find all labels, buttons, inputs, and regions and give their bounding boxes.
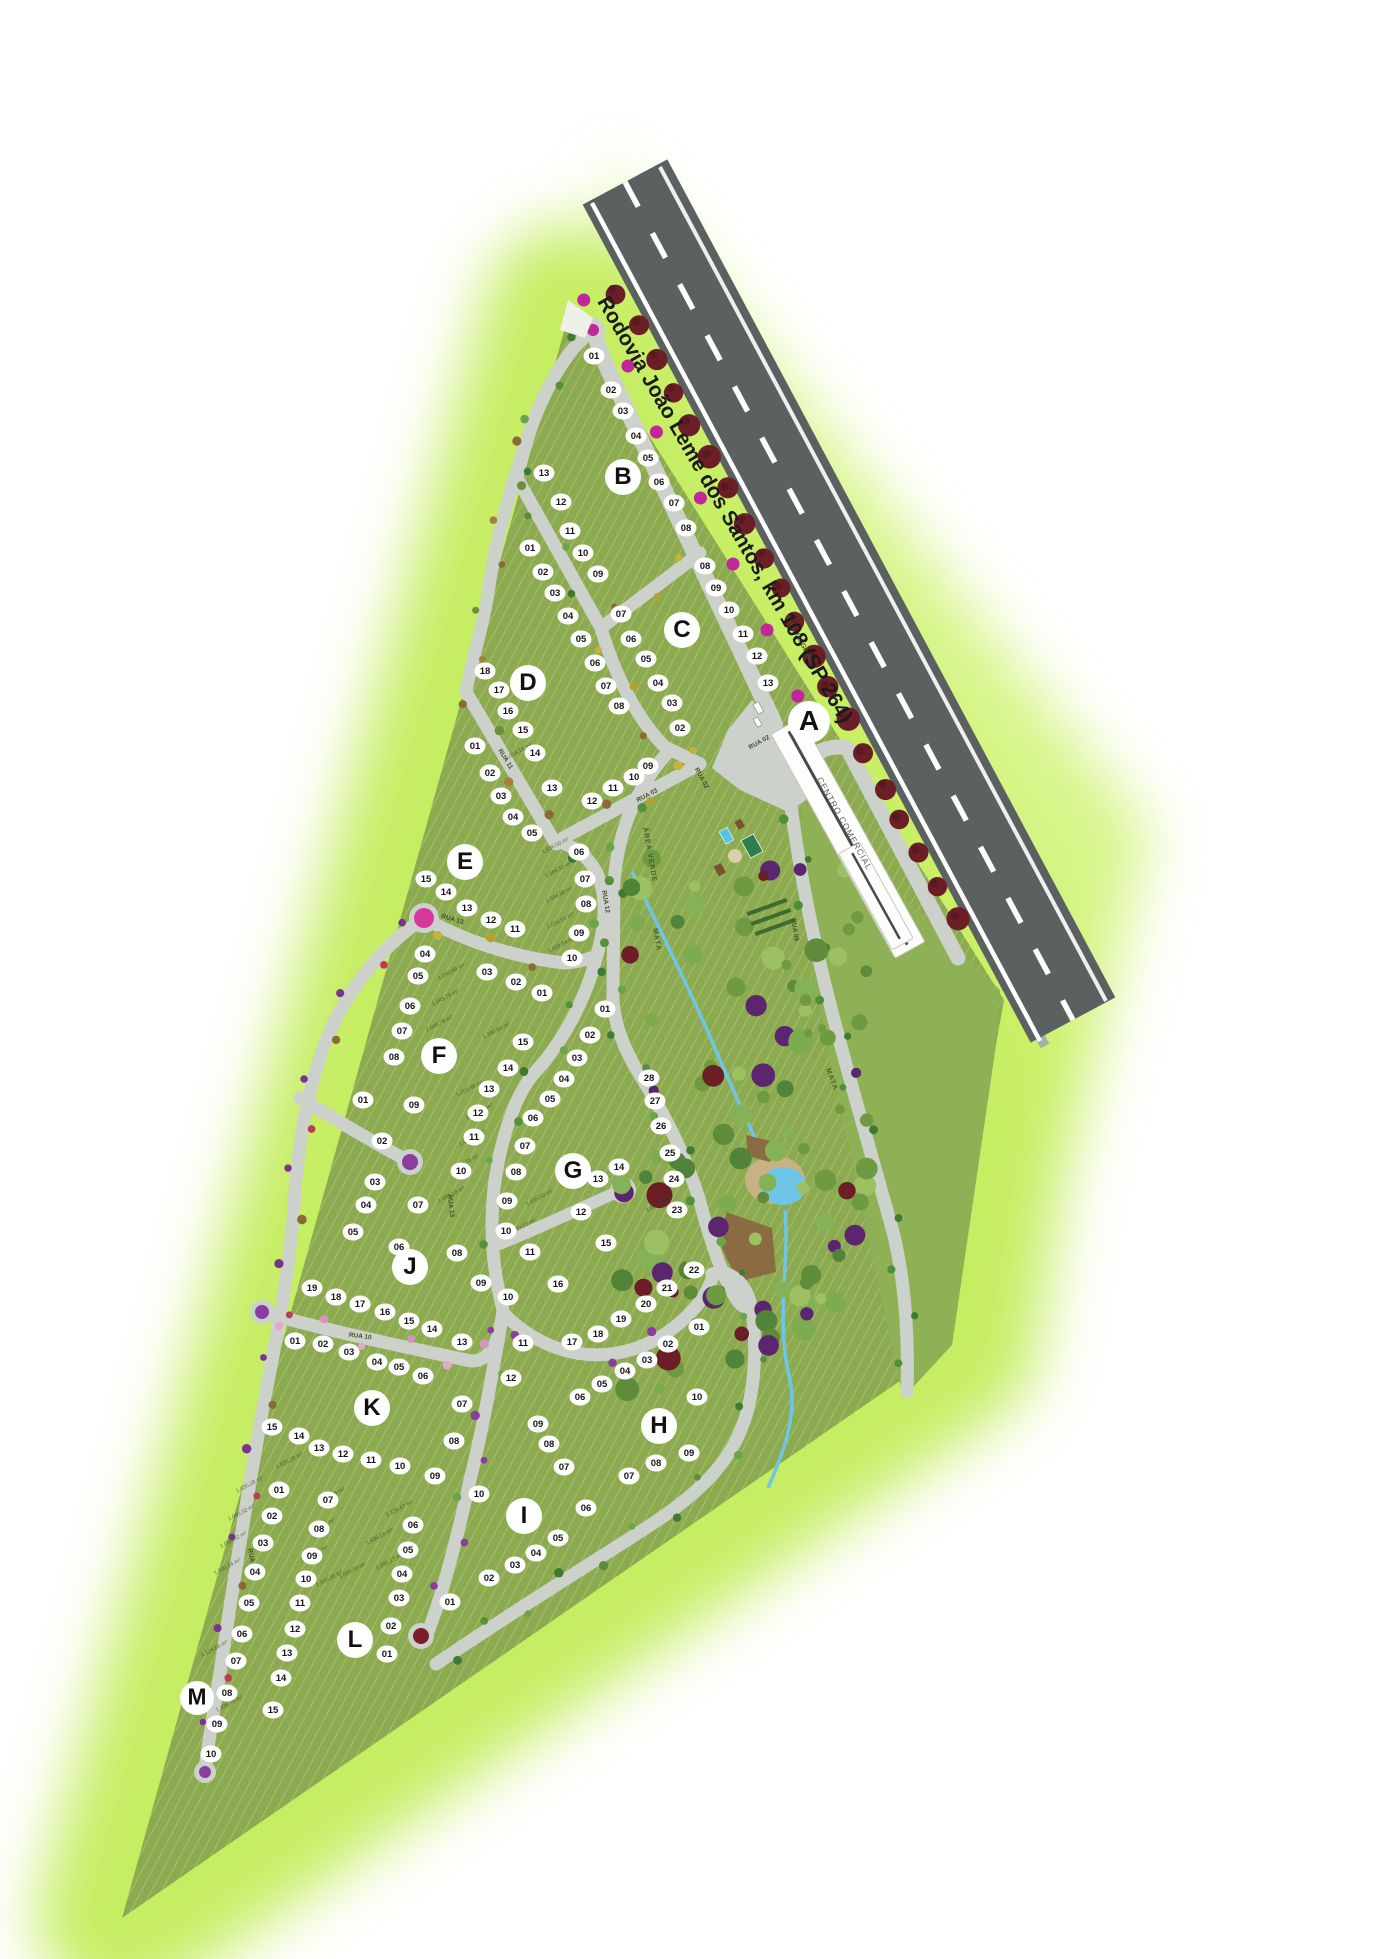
svg-text:11: 11 xyxy=(518,1338,529,1349)
svg-text:25: 25 xyxy=(665,1148,676,1159)
svg-text:18: 18 xyxy=(593,1329,604,1340)
svg-text:11: 11 xyxy=(469,1132,480,1143)
svg-text:L: L xyxy=(348,1626,363,1653)
tree-icon xyxy=(332,1036,340,1044)
svg-text:10: 10 xyxy=(692,1392,703,1403)
svg-text:07: 07 xyxy=(601,681,612,692)
tree-icon xyxy=(682,944,701,963)
lot-badge-I-05: 05 xyxy=(548,1530,569,1547)
lot-badge-E-03: 03 xyxy=(491,788,512,805)
svg-text:05: 05 xyxy=(643,453,654,464)
tree-icon xyxy=(274,1259,283,1268)
lot-badge-J-05: 05 xyxy=(343,1224,364,1241)
svg-text:07: 07 xyxy=(413,1200,424,1211)
lot-badge-K-01: 01 xyxy=(285,1333,306,1350)
svg-text:10: 10 xyxy=(501,1226,512,1237)
lot-badge-G-16: 16 xyxy=(548,1276,569,1293)
svg-text:15: 15 xyxy=(518,1037,529,1048)
feature-tree-icon xyxy=(199,1766,211,1778)
feature-tree-icon xyxy=(413,1628,429,1644)
lot-badge-I-02: 02 xyxy=(479,1570,500,1587)
tree-icon xyxy=(589,919,598,928)
tree-icon xyxy=(459,700,467,708)
tree-icon xyxy=(597,968,606,977)
lot-badge-F-06: 06 xyxy=(400,998,421,1015)
lot-badge-K-11: 11 xyxy=(361,1452,382,1469)
svg-text:04: 04 xyxy=(372,1357,383,1368)
svg-text:12: 12 xyxy=(486,915,497,926)
tree-icon xyxy=(472,607,479,614)
block-badge-F: F xyxy=(421,1038,457,1074)
lot-badge-G-09: 09 xyxy=(497,1193,518,1210)
tree-icon xyxy=(798,1143,810,1155)
svg-text:12: 12 xyxy=(506,1373,517,1384)
block-badge-J: J xyxy=(392,1249,428,1285)
svg-text:09: 09 xyxy=(684,1448,695,1459)
tree-icon xyxy=(779,814,789,824)
svg-text:10: 10 xyxy=(629,772,640,783)
lot-badge-H-06: 06 xyxy=(570,1389,591,1406)
tree-icon xyxy=(684,1285,698,1299)
lot-badge-L-02: 02 xyxy=(381,1618,402,1635)
svg-text:10: 10 xyxy=(724,605,735,616)
svg-text:01: 01 xyxy=(358,1095,369,1106)
svg-text:11: 11 xyxy=(738,629,749,640)
svg-text:01: 01 xyxy=(382,1649,393,1660)
lot-badge-I-06: 06 xyxy=(576,1500,597,1517)
svg-text:13: 13 xyxy=(484,1084,495,1095)
lot-badge-G-04: 04 xyxy=(554,1071,575,1088)
tree-icon xyxy=(605,876,614,885)
lot-badge-J-07: 07 xyxy=(408,1197,429,1214)
lot-badge-D-17: 17 xyxy=(489,682,510,699)
lot-badge-D-02: 02 xyxy=(533,564,554,581)
tree-icon xyxy=(673,1513,681,1521)
lot-badge-J-14: 14 xyxy=(422,1321,443,1338)
lot-badge-L-11: 11 xyxy=(290,1595,311,1612)
block-badge-M: M xyxy=(180,1681,214,1715)
svg-text:07: 07 xyxy=(559,1462,570,1473)
svg-text:14: 14 xyxy=(503,1063,514,1074)
svg-text:10: 10 xyxy=(578,548,589,559)
tree-icon xyxy=(751,1063,775,1087)
svg-text:F: F xyxy=(432,1042,447,1069)
lot-badge-G-18: 18 xyxy=(588,1326,609,1343)
tree-icon xyxy=(799,1004,812,1017)
tree-icon xyxy=(895,1214,903,1222)
tree-icon xyxy=(602,800,611,809)
svg-text:C: C xyxy=(673,616,690,643)
svg-text:12: 12 xyxy=(752,651,763,662)
lot-badge-C-13: 13 xyxy=(758,675,779,692)
svg-text:19: 19 xyxy=(307,1283,318,1294)
svg-text:07: 07 xyxy=(323,1495,334,1506)
lot-badge-D-15: 15 xyxy=(513,722,534,739)
tree-icon xyxy=(524,512,531,519)
svg-text:10: 10 xyxy=(206,1749,217,1760)
svg-text:08: 08 xyxy=(544,1439,555,1450)
tree-icon xyxy=(647,1327,656,1336)
lot-badge-L-03: 03 xyxy=(389,1590,410,1607)
tree-icon xyxy=(525,1610,532,1617)
svg-text:14: 14 xyxy=(530,748,541,759)
tree-icon xyxy=(650,426,663,439)
lot-badge-E-01: 01 xyxy=(465,738,486,755)
lot-badge-F-07: 07 xyxy=(392,1023,413,1040)
lot-badge-M-08: 08 xyxy=(217,1685,238,1702)
lot-badge-B-10: 10 xyxy=(573,545,594,562)
tree-icon xyxy=(951,912,959,920)
tree-icon xyxy=(556,382,564,390)
tree-icon xyxy=(629,1523,636,1530)
lot-badge-F-03: 03 xyxy=(477,964,498,981)
svg-text:05: 05 xyxy=(527,828,538,839)
lot-badge-B-03: 03 xyxy=(613,403,634,420)
lot-badge-J-03: 03 xyxy=(365,1174,386,1191)
lot-badge-I-04: 04 xyxy=(526,1545,547,1562)
lot-badge-H-03: 03 xyxy=(637,1352,658,1369)
tree-icon xyxy=(512,436,521,445)
lot-badge-C-04: 04 xyxy=(648,675,669,692)
svg-text:08: 08 xyxy=(314,1524,325,1535)
lot-badge-H-05: 05 xyxy=(592,1376,613,1393)
site-plan-map: 1.043,99 m²1.049,79 m²1.049,79 m²1.049,7… xyxy=(0,0,1400,1959)
tree-icon xyxy=(608,1359,616,1367)
lot-badge-C-03: 03 xyxy=(662,695,683,712)
tree-icon xyxy=(479,656,486,663)
lot-badge-G-22: 22 xyxy=(684,1262,705,1279)
tree-icon xyxy=(892,813,900,821)
tree-icon xyxy=(887,1265,895,1273)
tree-icon xyxy=(706,1285,726,1305)
lot-badge-D-11: 11 xyxy=(603,780,624,797)
tree-icon xyxy=(879,780,887,788)
tree-icon xyxy=(430,1582,438,1590)
svg-text:11: 11 xyxy=(565,526,576,537)
lot-badge-C-08: 08 xyxy=(695,558,716,575)
tree-icon xyxy=(654,593,661,600)
lot-badge-B-01: 01 xyxy=(584,348,605,365)
svg-text:13: 13 xyxy=(282,1648,293,1659)
lot-badge-F-01: 01 xyxy=(532,985,553,1002)
lot-badge-K-10: 10 xyxy=(390,1458,411,1475)
lot-badge-M-03: 03 xyxy=(253,1535,274,1552)
lot-badge-D-16: 16 xyxy=(498,703,519,720)
svg-text:01: 01 xyxy=(470,741,481,752)
tree-icon xyxy=(804,1029,812,1037)
lot-badge-I-09: 09 xyxy=(528,1416,549,1433)
patio xyxy=(728,849,742,863)
svg-text:03: 03 xyxy=(550,588,561,599)
svg-text:02: 02 xyxy=(511,977,522,988)
svg-text:14: 14 xyxy=(614,1162,625,1173)
tree-icon xyxy=(487,1327,494,1334)
svg-text:02: 02 xyxy=(318,1339,329,1350)
lot-badge-B-05: 05 xyxy=(638,450,659,467)
lot-badge-G-11: 11 xyxy=(520,1244,541,1261)
lot-badge-G-27: 27 xyxy=(645,1093,666,1110)
tree-icon xyxy=(727,558,740,571)
lot-badge-K-09: 09 xyxy=(425,1468,446,1485)
block-badge-C: C xyxy=(664,612,700,648)
tree-icon xyxy=(520,1067,529,1076)
tree-icon xyxy=(797,1182,810,1195)
tree-icon xyxy=(260,1354,267,1361)
svg-text:26: 26 xyxy=(656,1121,667,1132)
lot-badge-G-12: 12 xyxy=(571,1204,592,1221)
svg-text:08: 08 xyxy=(511,1167,522,1178)
svg-text:09: 09 xyxy=(409,1100,420,1111)
lot-badge-F-10: 10 xyxy=(451,1163,472,1180)
svg-text:15: 15 xyxy=(267,1422,278,1433)
lot-badge-G-21: 21 xyxy=(657,1280,678,1297)
lot-badge-K-05: 05 xyxy=(389,1359,410,1376)
tree-icon xyxy=(805,938,829,962)
lot-badge-H-07: 07 xyxy=(619,1468,640,1485)
svg-text:08: 08 xyxy=(452,1248,463,1259)
tree-icon xyxy=(708,1217,729,1238)
svg-text:12: 12 xyxy=(587,796,598,807)
tree-icon xyxy=(577,294,590,307)
svg-text:04: 04 xyxy=(531,1548,542,1559)
svg-text:05: 05 xyxy=(576,634,587,645)
lot-badge-D-12: 12 xyxy=(582,793,603,810)
svg-text:D: D xyxy=(519,669,536,696)
tree-icon xyxy=(637,803,646,812)
lot-badge-D-05: 05 xyxy=(571,631,592,648)
svg-text:06: 06 xyxy=(405,1001,416,1012)
lot-badge-B-13: 13 xyxy=(534,465,555,482)
lot-badge-K-03: 03 xyxy=(339,1344,360,1361)
lot-badge-K-14: 14 xyxy=(289,1428,310,1445)
lot-badge-E-07: 07 xyxy=(575,871,596,888)
tree-icon xyxy=(600,938,609,947)
tree-icon xyxy=(544,810,553,819)
lot-badge-G-19: 19 xyxy=(611,1311,632,1328)
svg-text:10: 10 xyxy=(301,1574,312,1585)
tree-icon xyxy=(851,1014,867,1030)
lot-badge-E-12: 12 xyxy=(481,912,502,929)
svg-text:13: 13 xyxy=(593,1174,604,1185)
tree-icon xyxy=(673,761,682,770)
svg-text:03: 03 xyxy=(618,406,629,417)
tree-icon xyxy=(514,1117,523,1126)
lot-badge-G-10: 10 xyxy=(496,1223,517,1240)
svg-text:07: 07 xyxy=(231,1656,242,1667)
svg-text:03: 03 xyxy=(667,698,678,709)
tree-icon xyxy=(253,1492,260,1499)
svg-text:01: 01 xyxy=(694,1322,705,1333)
tree-icon xyxy=(794,901,803,910)
svg-text:16: 16 xyxy=(553,1279,564,1290)
tree-icon xyxy=(611,1269,633,1291)
tree-icon xyxy=(517,481,526,490)
tree-icon xyxy=(844,1033,851,1040)
lot-badge-B-06: 06 xyxy=(649,474,670,491)
lot-badge-K-06: 06 xyxy=(413,1368,434,1385)
svg-text:04: 04 xyxy=(631,431,642,442)
svg-text:M: M xyxy=(188,1683,207,1709)
svg-text:06: 06 xyxy=(581,1503,592,1514)
lot-badge-J-13: 13 xyxy=(452,1334,473,1351)
tree-icon xyxy=(560,1046,568,1054)
svg-text:08: 08 xyxy=(614,701,625,712)
tree-icon xyxy=(805,856,812,863)
svg-text:06: 06 xyxy=(528,1113,539,1124)
tree-icon xyxy=(911,1312,918,1319)
tree-icon xyxy=(794,863,807,876)
tree-icon xyxy=(358,1343,365,1350)
lot-badge-J-02: 02 xyxy=(372,1133,393,1150)
svg-text:E: E xyxy=(457,848,473,875)
lot-badge-B-07: 07 xyxy=(664,495,685,512)
tree-icon xyxy=(820,1030,836,1046)
block-badge-G: G xyxy=(555,1153,591,1189)
lot-badge-L-09: 09 xyxy=(302,1548,323,1565)
tree-icon xyxy=(214,1624,222,1632)
block-badge-E: E xyxy=(447,844,483,880)
tree-icon xyxy=(621,946,639,964)
lot-badge-C-07: 07 xyxy=(611,606,632,623)
svg-text:01: 01 xyxy=(537,988,548,999)
svg-text:03: 03 xyxy=(370,1177,381,1188)
tree-icon xyxy=(851,1068,861,1078)
svg-text:10: 10 xyxy=(503,1292,514,1303)
tree-icon xyxy=(725,1349,744,1368)
lot-badge-G-14: 14 xyxy=(609,1159,630,1176)
tree-icon xyxy=(675,554,682,561)
svg-text:21: 21 xyxy=(662,1283,673,1294)
lot-badge-C-10: 10 xyxy=(719,602,740,619)
tree-icon xyxy=(407,1335,415,1343)
lot-badge-D-03: 03 xyxy=(545,585,566,602)
tree-icon xyxy=(238,1582,246,1590)
tree-icon xyxy=(860,965,872,977)
svg-text:16: 16 xyxy=(503,706,514,717)
lot-badge-F-04: 04 xyxy=(415,946,436,963)
lot-badge-E-14: 14 xyxy=(436,884,457,901)
lot-badge-M-10: 10 xyxy=(201,1746,222,1763)
tree-icon xyxy=(869,1125,878,1134)
tree-icon xyxy=(489,516,497,524)
svg-text:12: 12 xyxy=(290,1624,301,1635)
tree-icon xyxy=(606,843,615,852)
svg-text:17: 17 xyxy=(355,1299,366,1310)
svg-text:07: 07 xyxy=(397,1026,408,1037)
svg-text:J: J xyxy=(403,1253,416,1280)
svg-text:04: 04 xyxy=(397,1569,408,1580)
lot-badge-B-08: 08 xyxy=(676,520,697,537)
lot-badge-C-09: 09 xyxy=(706,580,727,597)
tree-icon xyxy=(702,1065,724,1087)
svg-text:01: 01 xyxy=(600,1004,611,1015)
svg-text:02: 02 xyxy=(675,723,686,734)
tree-icon xyxy=(895,1359,903,1367)
lot-badge-G-28: 28 xyxy=(639,1070,660,1087)
svg-text:05: 05 xyxy=(553,1533,564,1544)
svg-text:04: 04 xyxy=(563,611,574,622)
tree-icon xyxy=(618,985,626,993)
lot-badge-J-01: 01 xyxy=(353,1092,374,1109)
block-badge-I: I xyxy=(506,1498,542,1534)
tree-icon xyxy=(760,624,773,637)
lot-badge-D-10: 10 xyxy=(624,769,645,786)
tree-icon xyxy=(684,895,705,916)
svg-text:06: 06 xyxy=(408,1520,419,1531)
svg-text:09: 09 xyxy=(502,1196,513,1207)
lot-badge-G-01: 01 xyxy=(595,1001,616,1018)
lot-badge-M-09: 09 xyxy=(207,1716,228,1733)
svg-text:02: 02 xyxy=(538,567,549,578)
svg-text:18: 18 xyxy=(480,666,491,677)
svg-text:05: 05 xyxy=(394,1362,405,1373)
svg-text:15: 15 xyxy=(601,1238,612,1249)
tree-icon xyxy=(838,1182,855,1199)
tree-icon xyxy=(495,726,504,735)
svg-text:04: 04 xyxy=(620,1366,631,1377)
svg-text:11: 11 xyxy=(295,1598,306,1609)
svg-text:02: 02 xyxy=(585,1030,596,1041)
tree-icon xyxy=(380,961,388,969)
lot-badge-K-08: 08 xyxy=(444,1433,465,1450)
map-canvas: 1.043,99 m²1.049,79 m²1.049,79 m²1.049,7… xyxy=(0,0,1400,1959)
lot-badge-D-08: 08 xyxy=(609,698,630,715)
svg-text:02: 02 xyxy=(663,1339,674,1350)
lot-badge-I-10: 10 xyxy=(469,1486,490,1503)
svg-text:09: 09 xyxy=(593,569,604,580)
lot-badge-F-15: 15 xyxy=(513,1034,534,1051)
svg-text:12: 12 xyxy=(556,497,567,508)
tree-icon xyxy=(781,1127,792,1138)
svg-text:22: 22 xyxy=(689,1265,700,1276)
lot-badge-H-01: 01 xyxy=(689,1319,710,1336)
svg-text:28: 28 xyxy=(644,1073,655,1084)
svg-text:12: 12 xyxy=(576,1207,587,1218)
svg-text:18: 18 xyxy=(331,1292,342,1303)
tree-icon xyxy=(774,1281,790,1297)
block-badge-H: H xyxy=(641,1408,677,1444)
tree-icon xyxy=(852,1193,869,1210)
lot-badge-K-15: 15 xyxy=(262,1419,283,1436)
tree-icon xyxy=(242,1444,251,1453)
tree-icon xyxy=(568,590,576,598)
svg-text:04: 04 xyxy=(653,678,664,689)
svg-text:03: 03 xyxy=(394,1593,405,1604)
svg-text:09: 09 xyxy=(212,1719,223,1730)
tree-icon xyxy=(801,1265,821,1285)
lot-badge-I-03: 03 xyxy=(505,1557,526,1574)
svg-text:05: 05 xyxy=(348,1227,359,1238)
lot-badge-J-15: 15 xyxy=(399,1313,420,1330)
tree-icon xyxy=(486,933,495,942)
tree-icon xyxy=(757,1091,770,1104)
lot-badge-H-04: 04 xyxy=(615,1363,636,1380)
svg-text:04: 04 xyxy=(420,949,431,960)
lot-badge-M-07: 07 xyxy=(226,1653,247,1670)
block-badge-L: L xyxy=(337,1622,373,1658)
lot-badge-H-08: 08 xyxy=(646,1455,667,1472)
tree-icon xyxy=(800,1307,813,1320)
svg-text:06: 06 xyxy=(626,634,637,645)
svg-text:17: 17 xyxy=(567,1337,578,1348)
tree-icon xyxy=(554,1568,564,1578)
lot-badge-E-02: 02 xyxy=(480,765,501,782)
tree-icon xyxy=(840,1084,847,1091)
tree-icon xyxy=(792,1317,816,1341)
tree-icon xyxy=(843,923,855,935)
lot-badge-K-12: 12 xyxy=(333,1446,354,1463)
tree-icon xyxy=(686,1196,695,1205)
